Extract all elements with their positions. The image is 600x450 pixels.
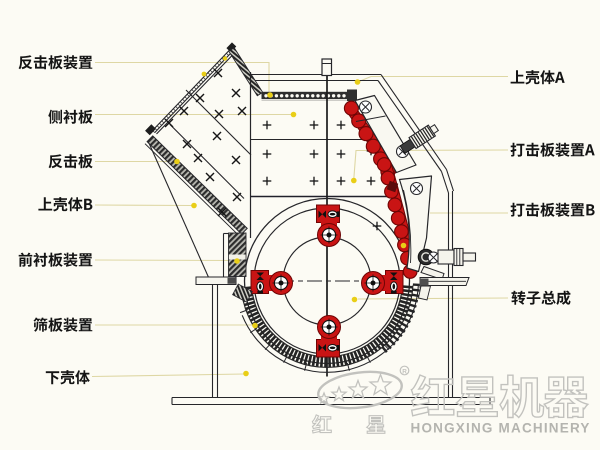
svg-text:HONGXING MACHINERY: HONGXING MACHINERY — [411, 421, 591, 436]
svg-text:R: R — [402, 368, 407, 375]
